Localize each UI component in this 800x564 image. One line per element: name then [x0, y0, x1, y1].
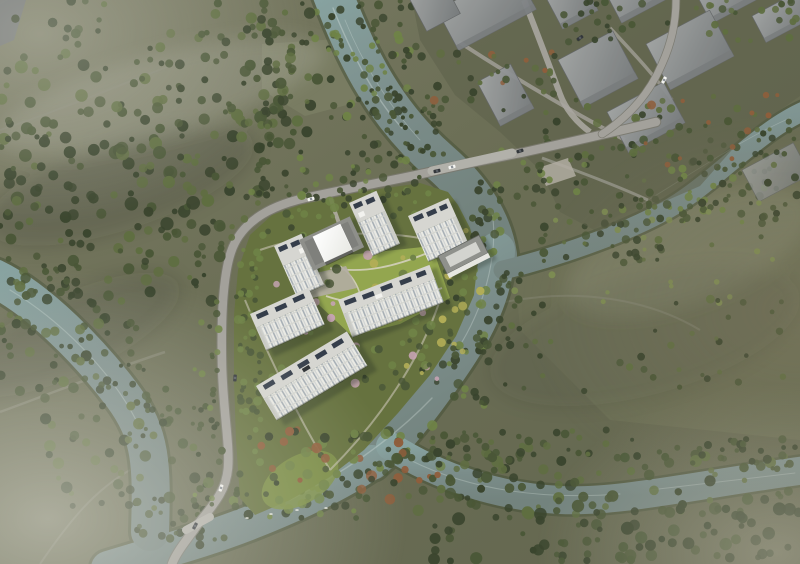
aerial-rendering-canvas: [0, 0, 800, 564]
aerial-rendering-root: [0, 0, 800, 564]
haze-overlay-right: [0, 0, 800, 564]
